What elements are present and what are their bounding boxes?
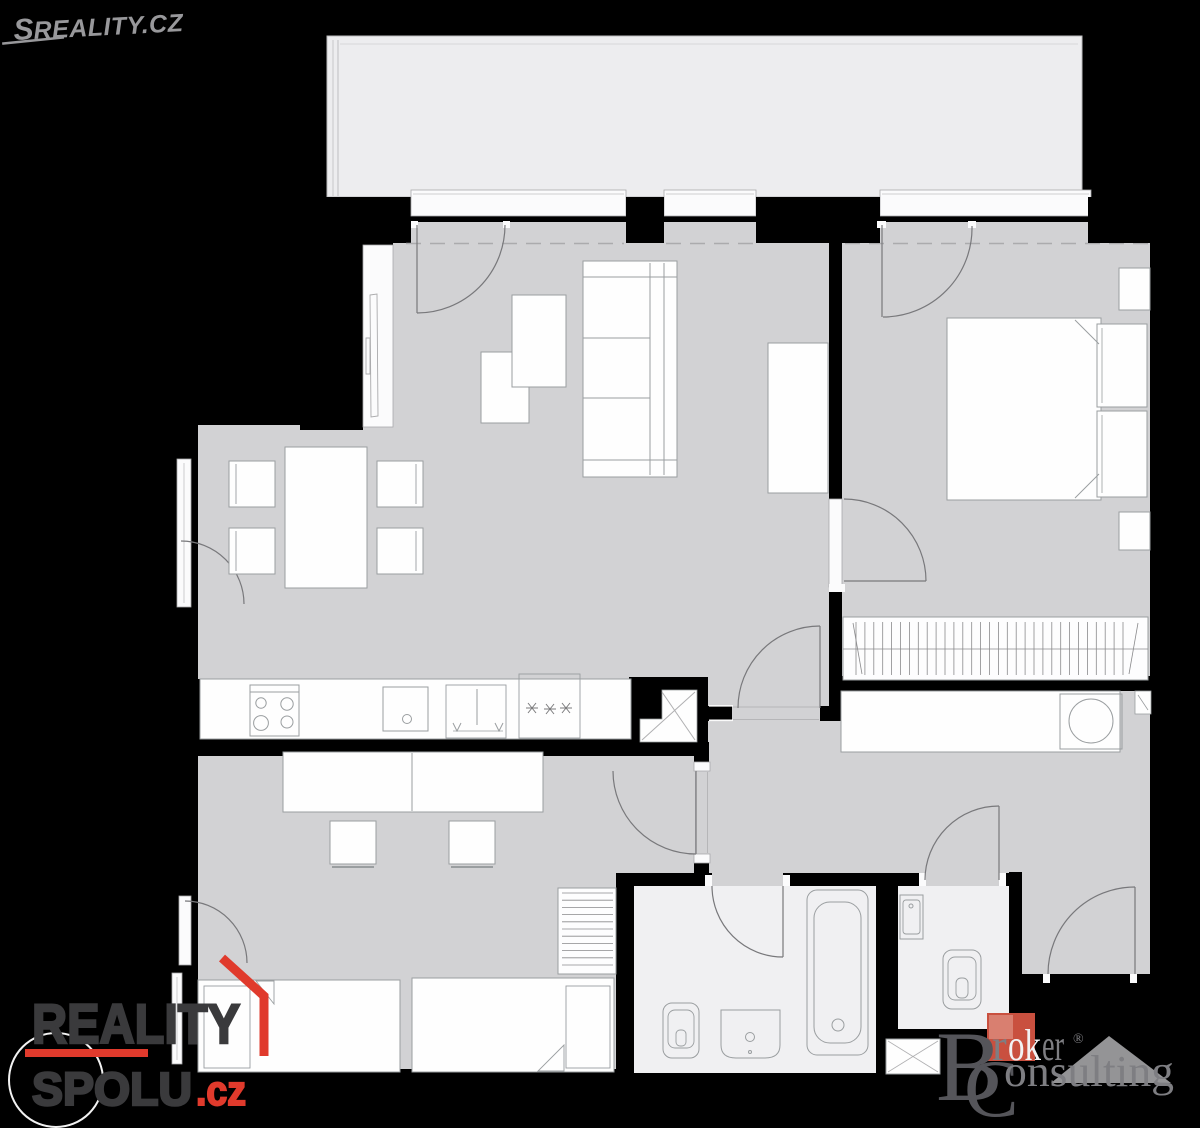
svg-text:onsulting: onsulting <box>1004 1047 1174 1096</box>
svg-text:.cz: .cz <box>196 1067 246 1114</box>
svg-text:®: ® <box>1073 1032 1084 1047</box>
svg-text:SPOLU: SPOLU <box>32 1063 192 1115</box>
svg-text:REALITY: REALITY <box>32 992 240 1055</box>
